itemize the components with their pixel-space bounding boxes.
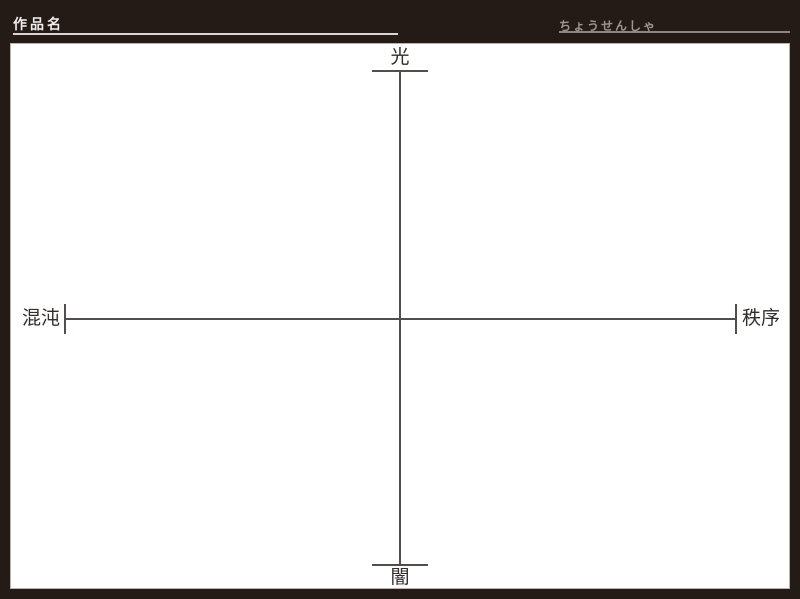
horizontal-axis-left-cap <box>64 304 66 334</box>
axis-top-label: 光 <box>390 47 409 67</box>
work-title-underline <box>13 33 398 35</box>
vertical-axis-top-cap <box>372 70 428 72</box>
axis-left-label: 混沌 <box>22 308 60 328</box>
axis-bottom-label: 闇 <box>390 567 409 587</box>
horizontal-axis-right-cap <box>735 304 737 334</box>
challenger-underline <box>559 31 790 33</box>
work-title-label: 作品名 <box>13 14 64 34</box>
axis-right-label: 秩序 <box>742 308 780 328</box>
outer-frame: 作品名 ちょうせんしゃ 光 闇 混沌 秩序 <box>0 0 800 599</box>
horizontal-axis-line <box>64 318 737 320</box>
alignment-chart-panel: 光 闇 混沌 秩序 <box>10 43 790 589</box>
